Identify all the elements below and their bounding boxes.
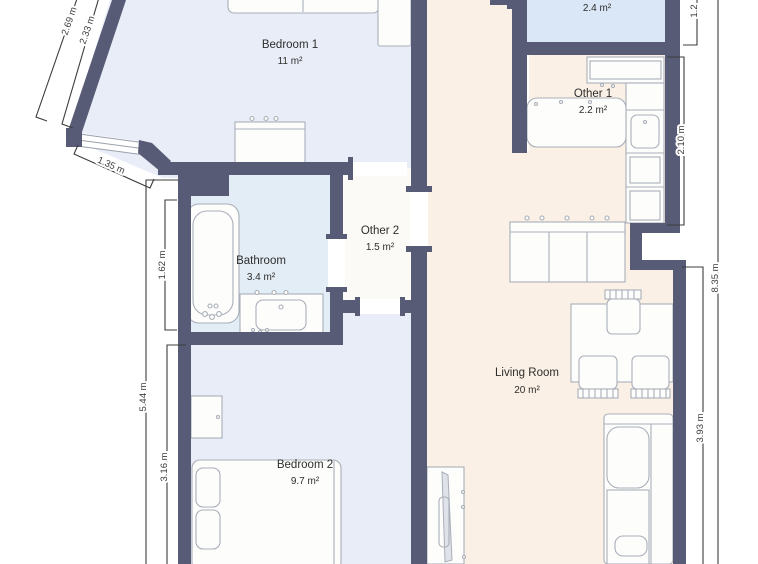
dining-chair-left (578, 356, 618, 398)
dim-label: 1.2 (689, 4, 700, 17)
nightstand (378, 0, 411, 46)
sideboard-island (510, 216, 625, 282)
door-opening-bedroom2 (360, 299, 400, 314)
dim-label: 2.69 m (60, 6, 80, 37)
dim-left-total: 5.44 m (138, 180, 178, 564)
door-opening-bathroom (328, 239, 345, 287)
room-area-other2: 1.5 m² (366, 242, 395, 253)
room-area-other1: 2.2 m² (579, 105, 608, 116)
room-label-other2: Other 2 (361, 225, 399, 237)
dim-right-total: 8.35 m (710, 0, 721, 564)
dim-label: 8.35 m (710, 263, 721, 292)
room-label-bedroom2: Bedroom 2 (277, 459, 333, 471)
room-area-bedroom2: 9.7 m² (291, 476, 320, 487)
room-fill-other2 (340, 168, 416, 308)
bed-bedroom1 (228, 0, 379, 13)
door-opening-other2-right (410, 192, 428, 246)
dim-bath-left: 1.62 m (157, 200, 177, 330)
dim-label: 2.10 m (676, 125, 687, 154)
room-label-bedroom1: Bedroom 1 (262, 39, 318, 51)
dining-chair-right (631, 356, 670, 398)
room-area-bedroom1: 11 m² (278, 56, 303, 67)
room-area-bathroom: 3.4 m² (247, 272, 276, 283)
room-label-bathroom: Bathroom (236, 255, 286, 267)
dim-label: 2.33 m (78, 15, 98, 46)
dresser-bedroom1 (235, 117, 305, 164)
room-label-other1: Other 1 (574, 88, 612, 100)
floor-plan: 2.69 m 2.33 m 1.35 m 1.62 m 5.44 m 3.16 … (0, 0, 758, 564)
room-area-living: 20 m² (514, 385, 540, 396)
cabinet-bedroom2 (191, 396, 222, 438)
floor-plan-page: 2.69 m 2.33 m 1.35 m 1.62 m 5.44 m 3.16 … (0, 0, 758, 564)
tv-unit (427, 467, 466, 564)
kitchen-counter-right (626, 83, 664, 223)
room-area-top-right: 2.4 m² (583, 3, 612, 14)
sofa (604, 414, 673, 564)
dim-label: 5.44 m (138, 382, 149, 411)
door-opening-other2-top (353, 162, 407, 176)
dim-label: 3.16 m (159, 452, 170, 481)
room-label-living: Living Room (495, 367, 559, 379)
vanity-sink (240, 291, 323, 336)
kitchen-counter-left (527, 98, 626, 147)
dim-label: 3.93 m (695, 413, 706, 442)
dim-diag-outer: 2.69 m (36, 0, 80, 121)
bathtub (187, 204, 239, 323)
dim-top-right-partial: 1.2 (683, 0, 700, 45)
dining-chair-top (605, 290, 641, 334)
dim-label: 1.62 m (157, 250, 168, 279)
